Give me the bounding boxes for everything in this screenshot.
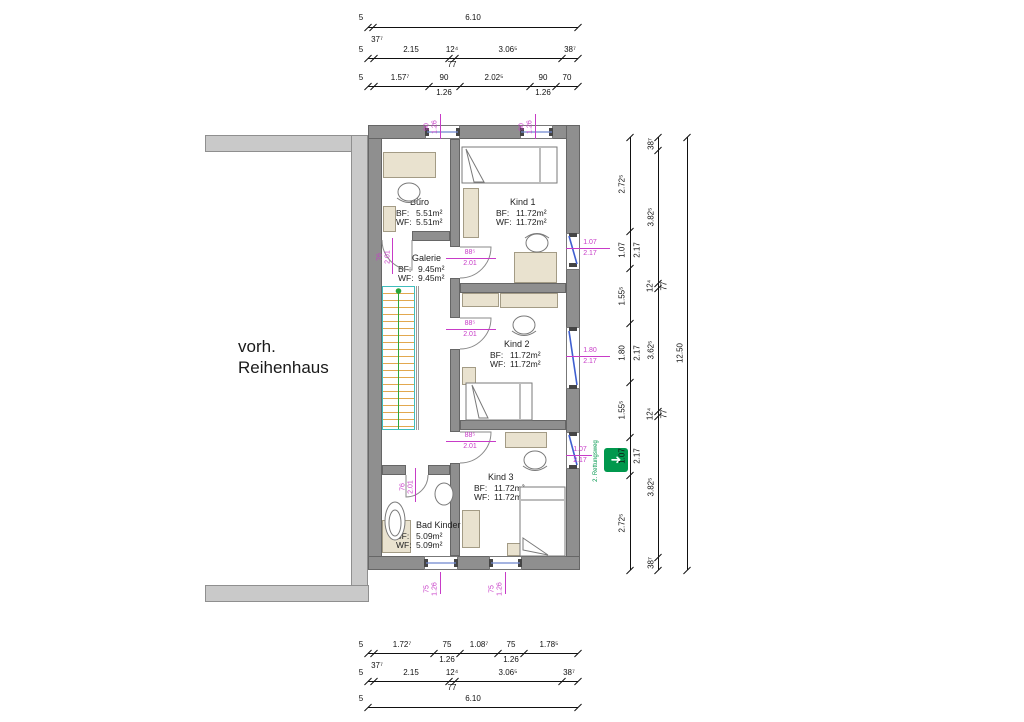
window-cap [424, 559, 428, 567]
dim-text: 6.10 [465, 13, 481, 22]
window-cap [456, 128, 460, 136]
room-label-kind1: Kind 1 BF:11.72m² WF:11.72m² [496, 198, 547, 228]
bed-kind2 [466, 383, 532, 420]
existing-building-wall-right [351, 135, 368, 602]
desk-kind2 [500, 293, 558, 308]
annotation-leader [446, 329, 496, 330]
dim-text: 70 [563, 73, 572, 82]
desk-buero [383, 152, 436, 178]
dim-text: 3.62⁵ [647, 341, 656, 360]
room-label-galerie: Galerie BF:9.45m² WF:9.45m² [398, 254, 444, 284]
existing-building-label: vorh. Reihenhaus [238, 336, 348, 378]
door-annotation-kind2-h: 2.01 [463, 331, 477, 339]
wf-value: 11.72m² [494, 493, 525, 503]
window-sill: 1.26 [526, 120, 534, 134]
dim-text: 77 [660, 282, 669, 291]
dim-text: 1.26 [439, 655, 455, 664]
wardrobe-kind3 [462, 510, 480, 548]
dim-text: 2.17 [633, 448, 642, 464]
dim-text: 38⁷ [563, 668, 575, 677]
window-annotation-bottom-2: 75 1.26 [489, 582, 504, 596]
dim-text: 3.06⁵ [499, 45, 518, 54]
wf-label: WF: [396, 541, 416, 551]
dim-text: 1.07 [618, 448, 627, 464]
door-width: 76 [400, 480, 408, 494]
desk-kind1 [514, 252, 557, 283]
dim-line [630, 137, 631, 570]
chair-kind2-back [512, 331, 536, 336]
chair-kind3-back [523, 466, 547, 471]
door-height: 2.01 [407, 480, 415, 494]
stair-railing [416, 286, 419, 430]
door-height: 2.01 [384, 250, 392, 264]
dim-text: 37⁷ [371, 35, 383, 44]
dim-text: 6.10 [465, 694, 481, 703]
window-bottom-1 [424, 556, 458, 570]
annotation-leader [446, 258, 496, 259]
dim-line [368, 58, 578, 59]
window-annotation-right-2-h: 2.17 [583, 358, 597, 366]
door-annotation-bad: 76 2.01 [400, 480, 415, 494]
door-annotation-kind3-h: 2.01 [463, 443, 477, 451]
dim-text: 3.82⁵ [647, 208, 656, 227]
window-annotation-right-1-w: 1.07 [583, 239, 597, 247]
floor-plan-drawing: vorh. Reihenhaus Büro [0, 0, 1024, 722]
annotation-leader [566, 455, 592, 456]
dim-text: 12⁴ [446, 45, 458, 54]
dim-text: 77 [448, 60, 457, 69]
dim-line [368, 653, 578, 654]
window-sill: 1.26 [496, 582, 504, 596]
window-right-2 [566, 327, 580, 389]
room-label-kind3: Kind 3 BF:11.72m² WF:11.72m² [474, 473, 525, 503]
window-cap [569, 263, 577, 267]
door-annotation-kind1-h: 2.01 [463, 260, 477, 268]
wf-value: 5.51m² [416, 218, 442, 228]
dim-text: 75 [507, 640, 516, 649]
dim-text: 1.55⁵ [618, 401, 627, 420]
door-width: 76 [377, 250, 385, 264]
window-annotation-bottom-1: 75 1.26 [424, 582, 439, 596]
annotation-leader [440, 572, 441, 594]
cabinet-kind3 [507, 543, 533, 556]
dim-text: 2.72⁵ [618, 175, 627, 194]
room-name: Büro [410, 198, 442, 208]
dim-text: 1.08⁷ [470, 640, 488, 649]
wall-interior-vertical [450, 278, 460, 318]
chair-kind1 [526, 234, 548, 252]
dim-text: 2.02⁵ [485, 73, 504, 82]
window-cap [569, 465, 577, 469]
window-annotation-right-3-w: 1.07 [573, 446, 587, 454]
wall-kind1-kind2 [460, 283, 566, 293]
door-annotation-kind2-w: 88⁵ [465, 320, 476, 328]
dim-line [658, 137, 659, 570]
wall-bottom [368, 556, 580, 570]
dim-line [368, 86, 578, 87]
wf-label: WF: [396, 218, 416, 228]
wall-buero-galerie [412, 231, 450, 241]
wardrobe-kind1 [463, 188, 479, 238]
wf-label: WF: [496, 218, 516, 228]
window-cap [569, 233, 577, 237]
window-annotation-right-3-h: 2.17 [573, 457, 587, 465]
door-annotation-kind3-w: 88⁵ [465, 432, 476, 440]
wf-value: 9.45m² [418, 274, 444, 284]
wf-label: WF: [490, 360, 510, 370]
dim-text: 38⁷ [647, 138, 656, 150]
dim-text: 90 [440, 73, 449, 82]
room-label-kind2: Kind 2 BF:11.72m² WF:11.72m² [490, 340, 541, 370]
dim-text: 90 [539, 73, 548, 82]
wf-value: 11.72m² [510, 360, 541, 370]
window-annotation-right-1-h: 2.17 [583, 250, 597, 258]
dim-text: 5 [359, 694, 363, 703]
dim-text: 2.72⁵ [618, 514, 627, 533]
dim-text: 1.55⁵ [618, 287, 627, 306]
dim-text: 5 [359, 668, 363, 677]
dim-text: 1.57⁷ [391, 73, 409, 82]
dim-text: 5 [359, 640, 363, 649]
existing-building-label-text: vorh. Reihenhaus [238, 336, 348, 378]
dim-text: 12⁴ [446, 668, 458, 677]
room-name: Bad Kinder [416, 521, 461, 531]
chair-kind2 [513, 316, 535, 334]
dim-text: 5 [359, 73, 363, 82]
bed-kind1-fold [466, 149, 484, 182]
dim-text: 1.26 [535, 88, 551, 97]
dim-text: 2.17 [633, 345, 642, 361]
wall-interior-vertical [450, 349, 460, 432]
dim-text: 38⁷ [564, 45, 576, 54]
dim-text: 75 [443, 640, 452, 649]
wall-galerie-bad [382, 465, 406, 475]
staircase [382, 286, 415, 430]
room-name: Kind 3 [488, 473, 525, 483]
escape-route-label: 2. Rettungsweg [593, 440, 599, 482]
dim-text: 2.15 [403, 668, 419, 677]
window-width: 75 [489, 582, 497, 596]
dim-text: 38⁷ [647, 557, 656, 569]
annotation-leader [415, 468, 416, 502]
dim-text: 5 [359, 13, 363, 22]
window-cap [518, 559, 522, 567]
dim-text: 1.07 [618, 242, 627, 258]
dim-line [368, 681, 578, 682]
window-cap [569, 385, 577, 389]
dim-text: 3.82⁵ [647, 478, 656, 497]
dim-text: 1.78⁵ [540, 640, 559, 649]
wf-label: WF: [474, 493, 494, 503]
window-cap [549, 128, 553, 136]
dim-line [368, 707, 578, 708]
room-label-buero: Büro BF:5.51m² WF:5.51m² [396, 198, 442, 228]
dim-text: 12⁴ [646, 280, 655, 292]
dim-line [368, 27, 578, 28]
window-sill: 1.26 [431, 582, 439, 596]
wf-value: 5.09m² [416, 541, 442, 551]
dim-text: 77 [448, 683, 457, 692]
chair-kind3 [524, 451, 546, 469]
dim-text: 37⁷ [371, 661, 383, 670]
window-cap [454, 559, 458, 567]
dim-text: 1.80 [618, 345, 627, 361]
existing-building-wall-bottom [205, 585, 369, 602]
window-width: 75 [424, 582, 432, 596]
dim-text: 1.26 [436, 88, 452, 97]
door-annotation-buero: 76 2.01 [377, 250, 392, 264]
dim-line [687, 137, 688, 570]
door-annotation-kind1-w: 88⁵ [465, 249, 476, 257]
dim-text: 3.06⁵ [499, 668, 518, 677]
window-cap [569, 432, 577, 436]
window-annotation-top-2: 90 1.26 [519, 120, 534, 134]
window-width: 90 [519, 120, 527, 134]
annotation-leader [566, 248, 610, 249]
room-name: Kind 2 [504, 340, 541, 350]
cabinet-kind2 [462, 367, 476, 385]
dim-text: 1.72⁷ [393, 640, 411, 649]
wall-kind2-kind3 [460, 420, 566, 430]
dim-text: 5 [359, 45, 363, 54]
wall-interior-vertical [450, 139, 460, 247]
window-annotation-top-1: 90 1.26 [424, 120, 439, 134]
room-name: Kind 1 [510, 198, 547, 208]
annotation-leader [566, 356, 610, 357]
chair-kind1-back [525, 234, 549, 239]
wall-left [368, 125, 382, 570]
annotation-leader [535, 114, 536, 139]
dim-text: 1.26 [503, 655, 519, 664]
annotation-leader [446, 441, 496, 442]
dim-text: 12.50 [676, 343, 685, 363]
annotation-leader [440, 114, 441, 139]
dim-text: 2.17 [633, 242, 642, 258]
desk-kind3 [505, 432, 547, 448]
window-sill: 1.26 [431, 120, 439, 134]
room-name: Galerie [412, 254, 444, 264]
wardrobe-kind2 [462, 293, 499, 307]
room-label-bad: Bad Kinder BF:5.09m² WF:5.09m² [396, 521, 461, 551]
dim-text: 12⁴ [646, 408, 655, 420]
wf-label: WF: [398, 274, 418, 284]
existing-building-wall-top [205, 135, 369, 152]
wall-galerie-bad [428, 465, 450, 475]
shelf-buero [383, 206, 396, 232]
window-width: 90 [424, 120, 432, 134]
annotation-leader [505, 572, 506, 594]
dim-text: 2.15 [403, 45, 419, 54]
window-cap [489, 559, 493, 567]
bed-kind2-fold [472, 385, 488, 418]
wf-value: 11.72m² [516, 218, 547, 228]
bed-kind1 [462, 147, 557, 183]
window-annotation-right-2-w: 1.80 [583, 347, 597, 355]
window-cap [569, 327, 577, 331]
dim-text: 77 [660, 410, 669, 419]
annotation-leader [392, 238, 393, 274]
